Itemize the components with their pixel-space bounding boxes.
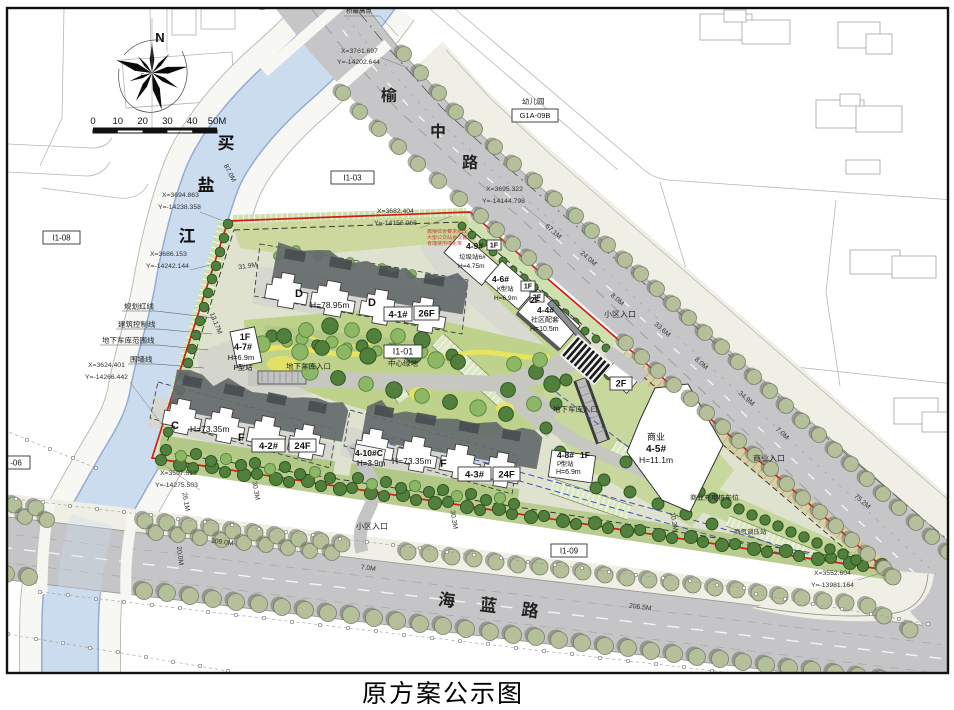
svg-text:2F: 2F bbox=[530, 295, 540, 305]
svg-text:Y=-14266.442: Y=-14266.442 bbox=[85, 374, 128, 381]
svg-text:30: 30 bbox=[162, 116, 173, 127]
svg-text:X=3624.401: X=3624.401 bbox=[88, 362, 125, 369]
svg-text:4-5#: 4-5# bbox=[646, 444, 666, 455]
svg-text:X=3682.404: X=3682.404 bbox=[377, 208, 414, 215]
svg-text:H=78.95m: H=78.95m bbox=[310, 300, 349, 310]
svg-text:10: 10 bbox=[113, 116, 124, 127]
svg-text:1F: 1F bbox=[240, 332, 251, 342]
svg-text:P: P bbox=[233, 363, 238, 372]
svg-text:N: N bbox=[155, 30, 164, 45]
svg-text:F: F bbox=[440, 458, 447, 470]
svg-text:4-6#: 4-6# bbox=[492, 274, 509, 284]
svg-text:H=4.75m: H=4.75m bbox=[458, 263, 485, 270]
svg-text:H=6.9m: H=6.9m bbox=[228, 353, 254, 362]
svg-text:1F: 1F bbox=[524, 284, 533, 291]
svg-text:4-8#: 4-8# bbox=[557, 450, 574, 460]
svg-text:D: D bbox=[295, 288, 303, 300]
svg-text:I1-08: I1-08 bbox=[52, 233, 71, 242]
svg-text:4-3#: 4-3# bbox=[465, 469, 485, 480]
svg-text:4-2#: 4-2# bbox=[259, 441, 279, 452]
svg-text:H=10.5m: H=10.5m bbox=[530, 326, 559, 333]
svg-text:40: 40 bbox=[187, 116, 198, 127]
svg-text:Y=-14156.066: Y=-14156.066 bbox=[374, 220, 417, 227]
svg-text:Y=-14238.358: Y=-14238.358 bbox=[158, 204, 201, 211]
svg-text:X=3761.697: X=3761.697 bbox=[341, 48, 378, 55]
svg-text:H=6.9m: H=6.9m bbox=[494, 295, 517, 302]
svg-text:X=3552.604: X=3552.604 bbox=[814, 570, 851, 577]
svg-text:2F: 2F bbox=[616, 379, 627, 389]
svg-text:20: 20 bbox=[137, 116, 148, 127]
svg-text:I1-01: I1-01 bbox=[393, 347, 414, 357]
svg-text:4-4#: 4-4# bbox=[537, 305, 554, 315]
svg-text:F: F bbox=[238, 432, 245, 444]
svg-text:H=3.9m: H=3.9m bbox=[357, 459, 386, 468]
svg-text:Y=-14202.644: Y=-14202.644 bbox=[337, 59, 380, 66]
svg-text:H=73.35m: H=73.35m bbox=[190, 424, 229, 434]
svg-text:24F: 24F bbox=[498, 469, 515, 480]
svg-text:P: P bbox=[557, 461, 561, 468]
svg-text:G1A-09B: G1A-09B bbox=[520, 111, 551, 120]
svg-text:Y=-14275.503: Y=-14275.503 bbox=[155, 482, 198, 489]
svg-text:Y=-14144.798: Y=-14144.798 bbox=[482, 198, 525, 205]
svg-text:K: K bbox=[497, 286, 502, 293]
svg-text:D: D bbox=[368, 297, 376, 309]
svg-text:C: C bbox=[171, 420, 179, 432]
svg-text:I1-03: I1-03 bbox=[343, 173, 362, 182]
svg-text:X=3686.153: X=3686.153 bbox=[150, 251, 187, 258]
svg-text:Y=-14242.144: Y=-14242.144 bbox=[146, 263, 189, 270]
svg-text:Y=-13981.164: Y=-13981.164 bbox=[811, 582, 854, 589]
svg-text:H=11.1m: H=11.1m bbox=[639, 455, 673, 465]
svg-text:-06: -06 bbox=[10, 458, 22, 467]
svg-text:4-1#: 4-1# bbox=[388, 309, 408, 320]
svg-text:26F: 26F bbox=[418, 308, 435, 319]
svg-text:1F: 1F bbox=[580, 450, 590, 460]
svg-text:6#: 6# bbox=[479, 254, 487, 261]
svg-text:X=3695.322: X=3695.322 bbox=[486, 186, 523, 193]
svg-text:X=3694.863: X=3694.863 bbox=[162, 192, 199, 199]
svg-text:4-10#C: 4-10#C bbox=[355, 448, 383, 458]
svg-text:1F: 1F bbox=[490, 243, 499, 250]
svg-text:0: 0 bbox=[90, 116, 95, 127]
svg-text:I1-09: I1-09 bbox=[560, 546, 579, 555]
svg-text:24F: 24F bbox=[294, 441, 311, 452]
svg-text:X=3597.519: X=3597.519 bbox=[160, 470, 197, 477]
svg-text:4-9#: 4-9# bbox=[466, 241, 483, 251]
svg-text:H=73.35m: H=73.35m bbox=[392, 456, 431, 466]
svg-text:4-7#: 4-7# bbox=[234, 342, 252, 352]
svg-text:50M: 50M bbox=[208, 116, 227, 127]
svg-text:H=6.9m: H=6.9m bbox=[556, 469, 581, 476]
